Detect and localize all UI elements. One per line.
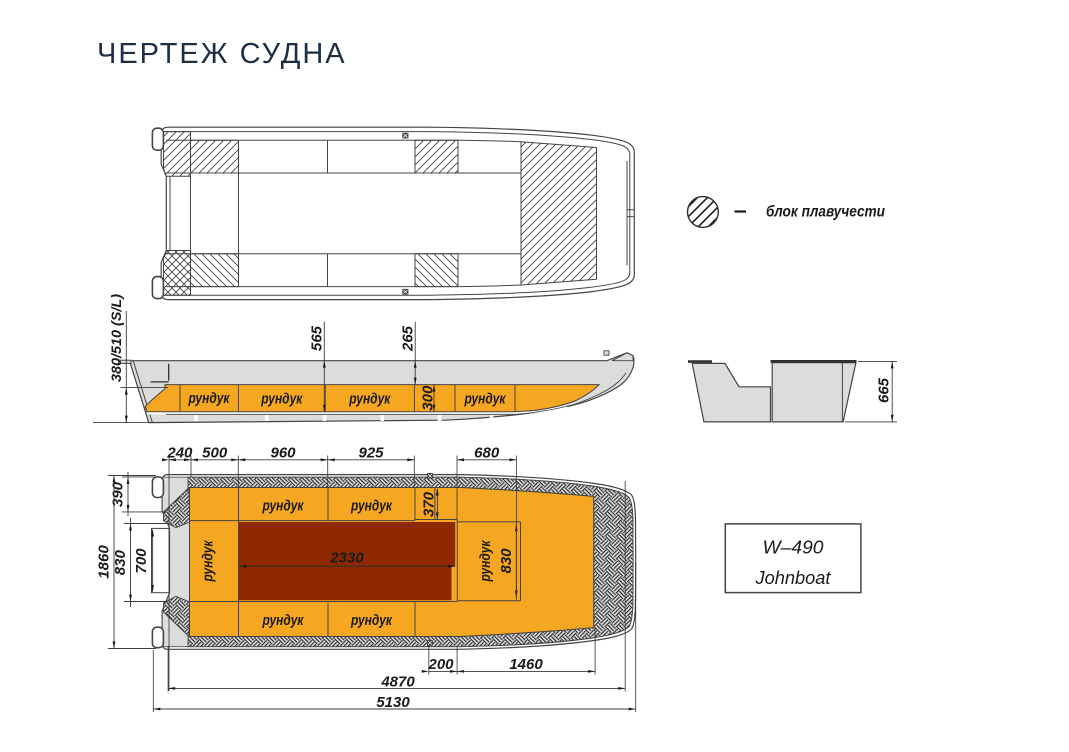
svg-text:925: 925 <box>358 444 384 461</box>
svg-text:рундук: рундук <box>349 391 392 408</box>
svg-text:рундук: рундук <box>350 498 393 515</box>
svg-text:рундук: рундук <box>262 498 305 515</box>
svg-text:960: 960 <box>270 444 296 461</box>
svg-text:рундук: рундук <box>200 539 217 582</box>
svg-text:300: 300 <box>420 385 437 411</box>
svg-text:830: 830 <box>112 550 129 576</box>
svg-text:265: 265 <box>399 325 416 352</box>
svg-text:рундук: рундук <box>477 539 494 582</box>
svg-text:Johnboat: Johnboat <box>754 568 831 588</box>
svg-text:680: 680 <box>474 444 500 461</box>
svg-text:240: 240 <box>166 444 193 461</box>
svg-text:5130: 5130 <box>376 694 410 711</box>
svg-text:380/510 (S/L): 380/510 (S/L) <box>109 293 124 382</box>
svg-text:рундук: рундук <box>261 391 304 408</box>
svg-text:рундук: рундук <box>350 612 393 629</box>
svg-text:рундук: рундук <box>464 391 507 408</box>
svg-text:200: 200 <box>427 656 454 673</box>
svg-text:565: 565 <box>309 325 326 351</box>
svg-text:830: 830 <box>498 548 515 574</box>
svg-text:1460: 1460 <box>509 656 543 673</box>
svg-text:370: 370 <box>421 491 438 517</box>
svg-text:1860: 1860 <box>96 545 113 579</box>
svg-text:390: 390 <box>110 481 127 507</box>
svg-text:4870: 4870 <box>380 674 415 691</box>
svg-text:рундук: рундук <box>262 612 305 629</box>
svg-text:665: 665 <box>876 377 893 403</box>
svg-text:W–490: W–490 <box>763 538 824 558</box>
svg-text:блок плавучести: блок плавучести <box>766 204 885 221</box>
svg-text:500: 500 <box>202 444 228 461</box>
svg-text:2330: 2330 <box>329 550 364 567</box>
svg-text:700: 700 <box>133 548 150 574</box>
svg-text:рундук: рундук <box>188 390 231 407</box>
